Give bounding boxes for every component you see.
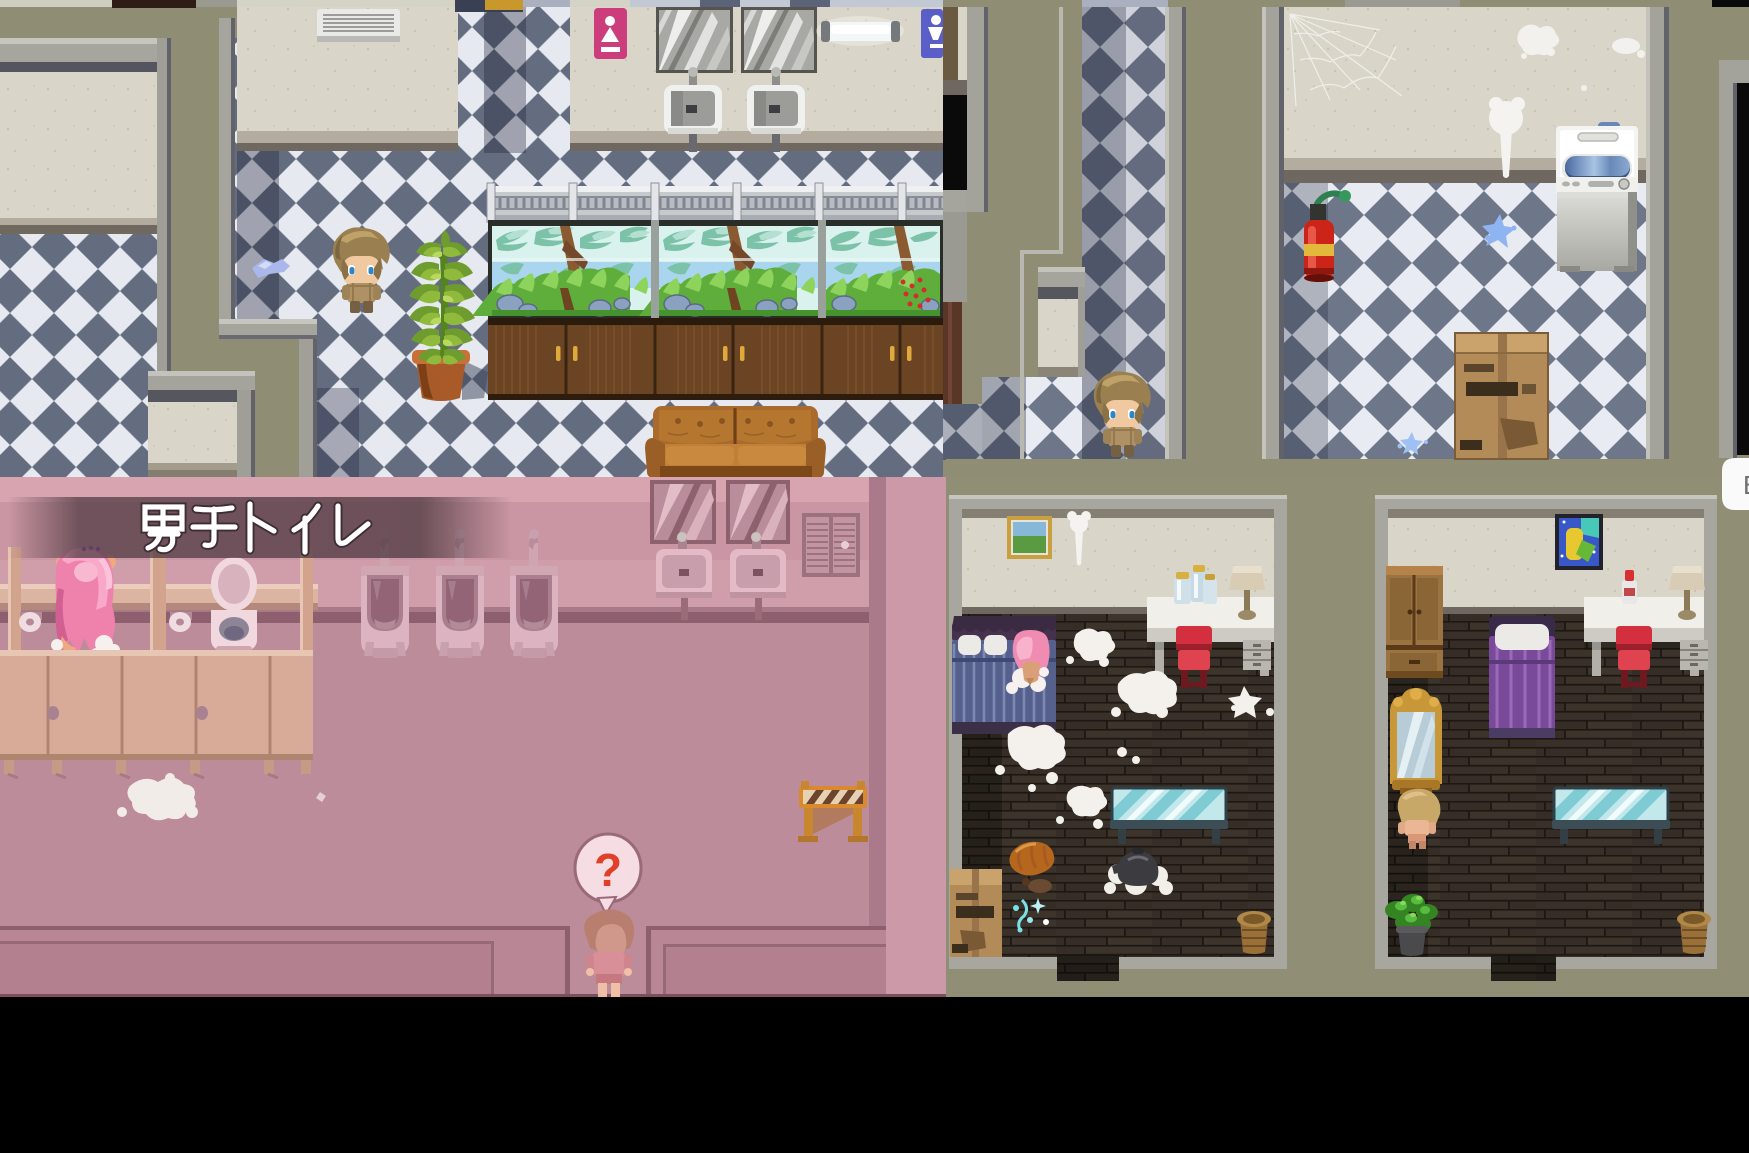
svg-text:?: ? [594, 844, 622, 896]
svg-text:B: B [1743, 470, 1749, 500]
